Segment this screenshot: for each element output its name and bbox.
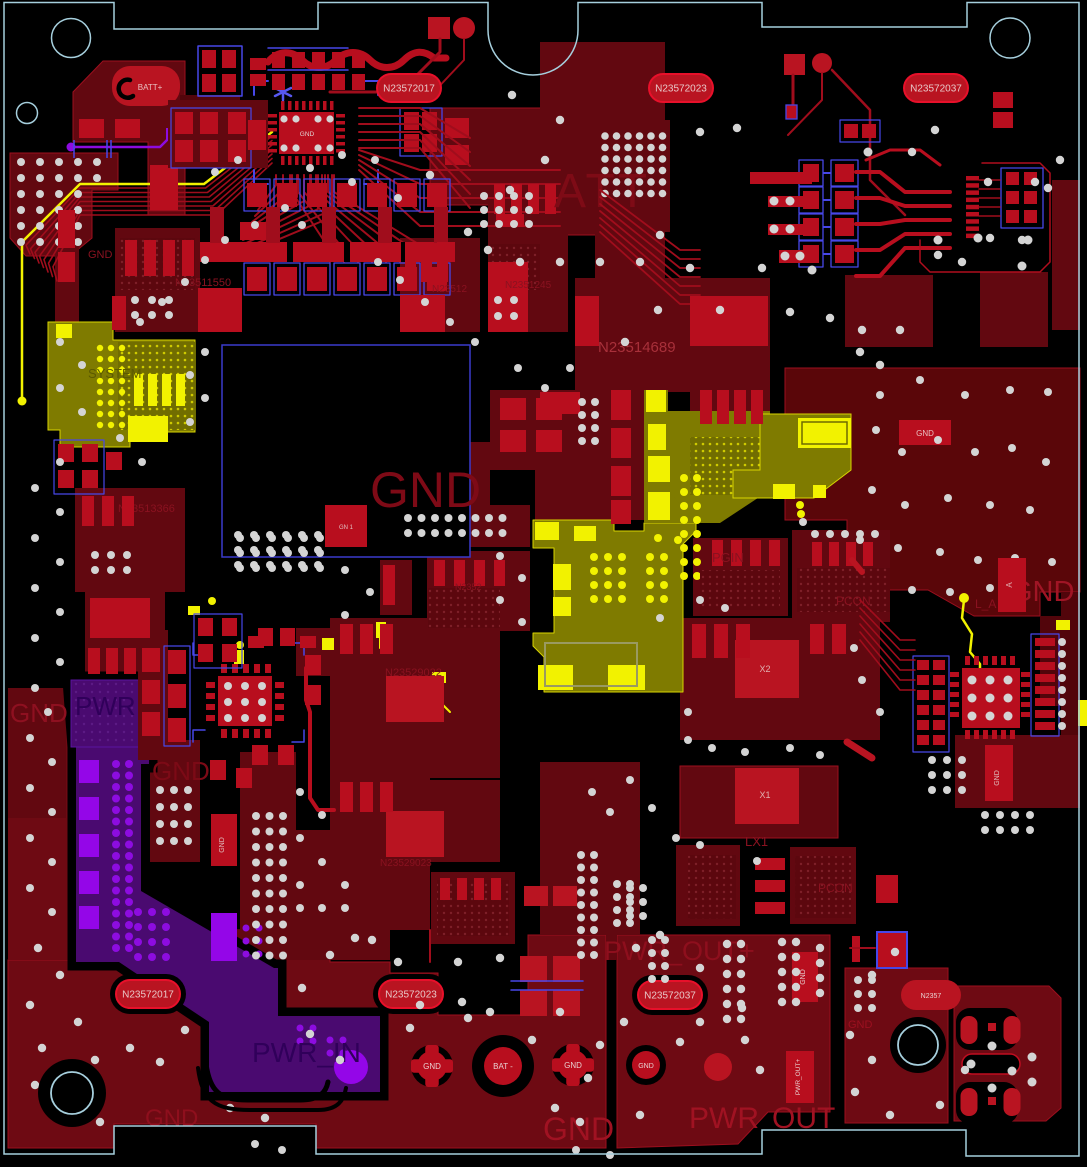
svg-text:GND: GND (300, 131, 315, 138)
svg-text:GND: GND (88, 249, 113, 261)
svg-text:N23572017: N23572017 (383, 84, 435, 95)
svg-text:LX1: LX1 (745, 834, 768, 849)
svg-text:GND: GND (152, 756, 210, 786)
svg-text:N2351245: N2351245 (505, 280, 552, 291)
svg-text:GND: GND (848, 1019, 873, 1031)
svg-text:N23572037: N23572037 (644, 991, 696, 1002)
svg-text:L_A: L_A (975, 597, 996, 611)
svg-text:GND: GND (916, 429, 934, 438)
svg-text:A: A (1005, 582, 1014, 588)
svg-text:GND: GND (219, 837, 226, 853)
svg-text:N23572037: N23572037 (910, 84, 962, 95)
svg-text:GND: GND (370, 462, 481, 518)
svg-text:BAT -: BAT - (493, 1062, 513, 1071)
svg-text:X1: X1 (759, 790, 770, 800)
svg-text:GN 1: GN 1 (339, 525, 354, 531)
svg-text:GND: GND (564, 1061, 582, 1070)
svg-text:SYSTEM: SYSTEM (88, 366, 141, 381)
svg-text:BATT+: BATT+ (138, 83, 163, 92)
svg-text:GND: GND (800, 969, 807, 985)
svg-text:PWR: PWR (75, 691, 136, 721)
svg-text:N23514689: N23514689 (598, 339, 676, 356)
svg-text:N23572017: N23572017 (122, 990, 174, 1001)
svg-text:PWR_IN: PWR_IN (252, 1037, 361, 1068)
svg-text:PWR_OUT+: PWR_OUT+ (604, 936, 755, 966)
svg-text:GND: GND (10, 698, 68, 728)
svg-text:GND: GND (543, 1111, 614, 1147)
svg-text:PGIN: PGIN (712, 550, 744, 565)
svg-text:N23529022: N23529022 (385, 667, 442, 679)
svg-text:N23529023: N23529023 (380, 858, 432, 869)
svg-text:GND: GND (638, 1063, 654, 1070)
svg-text:X2: X2 (759, 664, 770, 674)
svg-text:GND: GND (145, 1105, 198, 1132)
svg-text:PWR: PWR (689, 1102, 759, 1135)
svg-text:PWR_OUT+: PWR_OUT+ (795, 1059, 802, 1096)
svg-text:N23572023: N23572023 (655, 84, 707, 95)
svg-text:GND: GND (423, 1062, 441, 1071)
svg-text:N2357: N2357 (921, 993, 942, 1000)
svg-text:N2352: N2352 (455, 582, 482, 592)
svg-text:PCON: PCON (818, 881, 853, 895)
svg-text:N23512: N23512 (432, 284, 467, 295)
svg-text:GND: GND (994, 770, 1001, 786)
svg-text:N23572023: N23572023 (385, 990, 437, 1001)
